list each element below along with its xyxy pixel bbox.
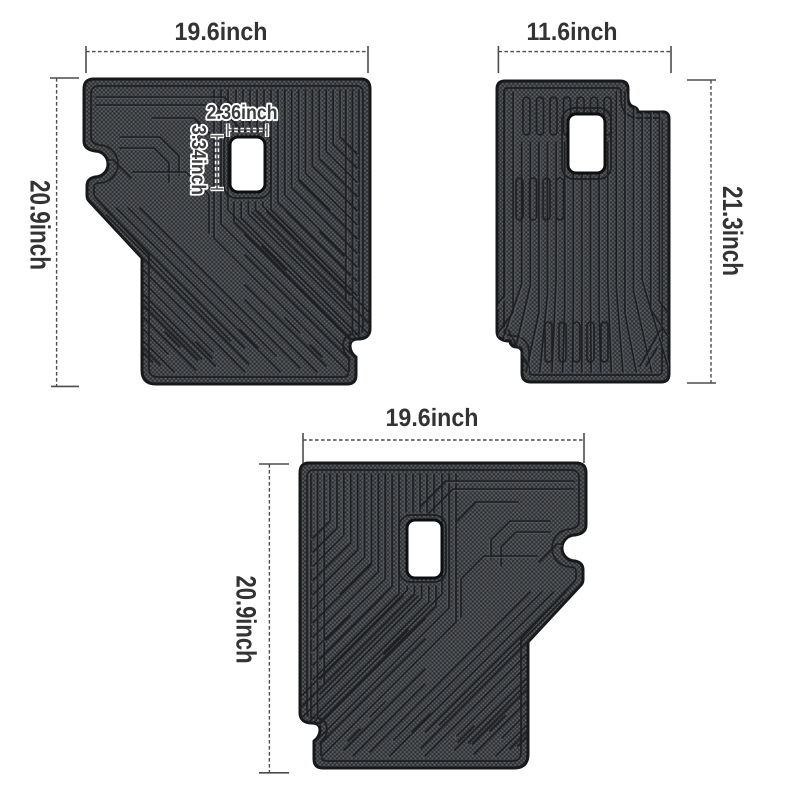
svg-text:19.6inch: 19.6inch [175, 18, 268, 46]
svg-text:2.36inch: 2.36inch [206, 102, 277, 124]
svg-text:21.3inch: 21.3inch [717, 186, 748, 276]
svg-text:19.6inch: 19.6inch [386, 404, 479, 432]
svg-text:11.6inch: 11.6inch [527, 18, 618, 46]
svg-text:20.9inch: 20.9inch [231, 576, 262, 664]
svg-text:20.9inch: 20.9inch [25, 180, 56, 270]
svg-text:3.34inch: 3.34inch [187, 125, 209, 195]
